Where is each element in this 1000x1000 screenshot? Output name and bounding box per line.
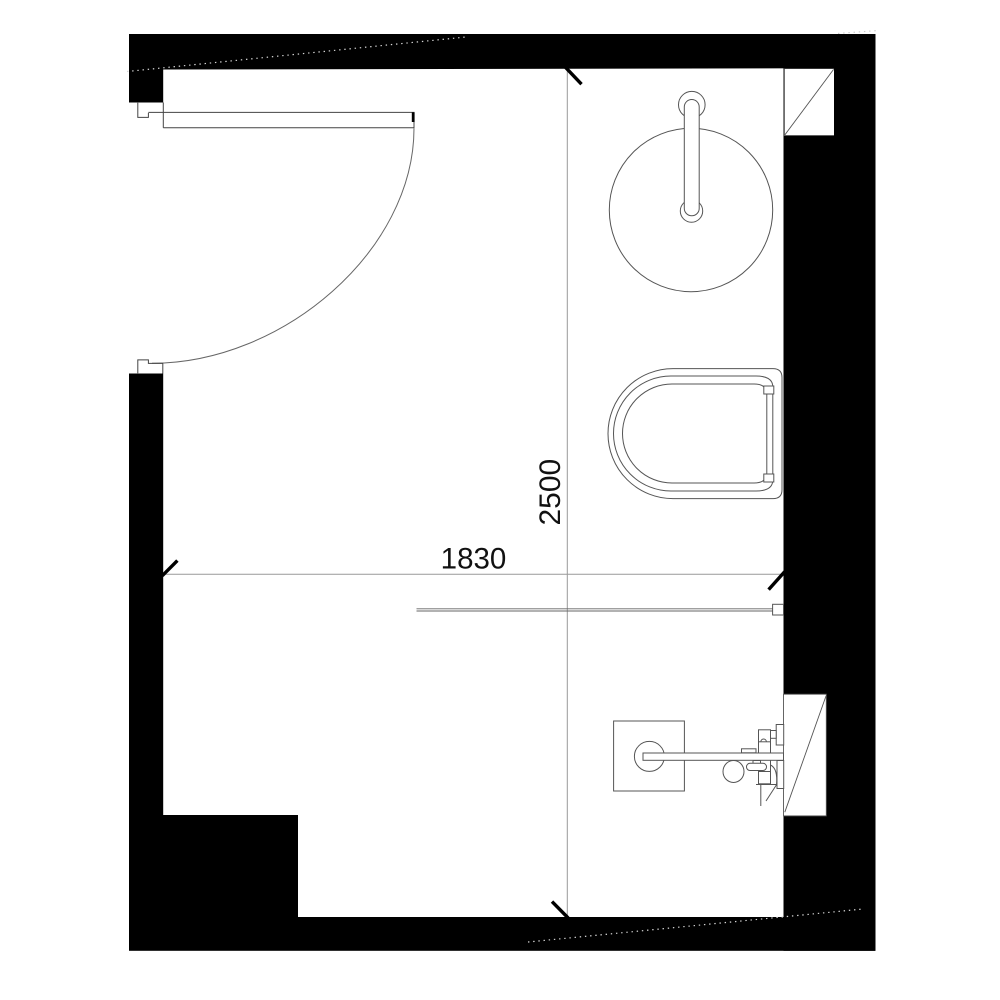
svg-text:1830: 1830 <box>441 542 507 575</box>
svg-text:2500: 2500 <box>534 459 567 526</box>
